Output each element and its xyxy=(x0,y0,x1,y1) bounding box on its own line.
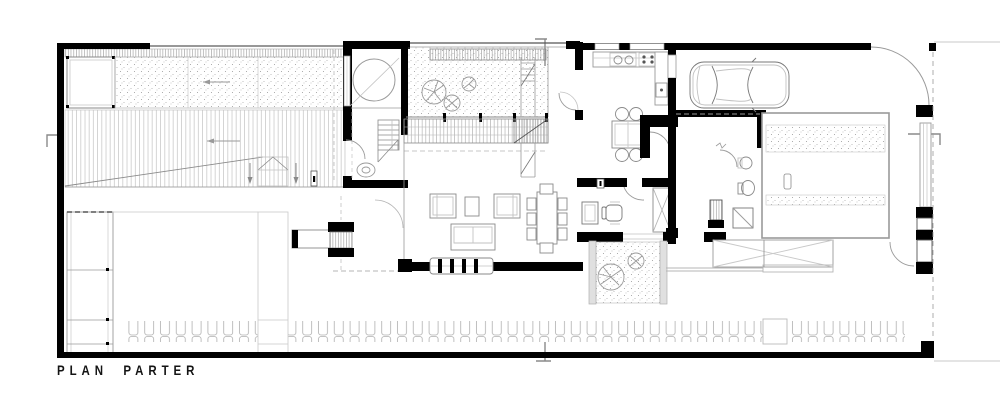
entry-door-arc xyxy=(559,93,576,110)
breakfast-table xyxy=(612,108,644,162)
terrace-door-arc xyxy=(375,200,403,228)
outdoor-grill xyxy=(292,196,354,272)
toilet xyxy=(738,181,755,196)
outdoor-left-zone xyxy=(65,46,345,355)
pavilion xyxy=(66,56,115,108)
planter-strip xyxy=(67,212,113,355)
bathroom xyxy=(666,143,755,242)
property-lines xyxy=(934,42,1000,361)
car-icon xyxy=(690,58,789,112)
bedroom-door-arc xyxy=(890,242,914,266)
south-wall-site xyxy=(57,352,934,358)
right-window-strip xyxy=(920,123,931,207)
office-terrace xyxy=(589,241,667,304)
garage-door-arc xyxy=(871,47,929,105)
bath-door-arc xyxy=(720,150,737,167)
armchair xyxy=(430,194,456,218)
driveway-ramp xyxy=(65,110,345,187)
entry-hall xyxy=(548,42,583,120)
paving-slabs xyxy=(123,318,933,345)
plan-title: PLAN PARTER xyxy=(57,362,199,378)
floor-plan-sheet: PLAN PARTER xyxy=(0,0,1000,400)
spa-room xyxy=(343,41,410,135)
office-chair xyxy=(602,202,622,224)
gate-post xyxy=(311,171,317,186)
wall-control xyxy=(597,179,604,188)
section-mark-bottom xyxy=(536,342,551,361)
south-window xyxy=(430,258,493,274)
shower xyxy=(733,208,753,228)
hall-door-arc xyxy=(650,132,670,152)
kitchen xyxy=(583,43,678,162)
sink xyxy=(738,157,752,169)
upper-deck xyxy=(115,57,345,108)
right-patio xyxy=(762,113,889,238)
built-in-cabinet xyxy=(666,240,833,272)
southeast-corner xyxy=(921,341,934,358)
armchair xyxy=(494,194,520,218)
patio-object xyxy=(784,174,791,189)
stair-hall xyxy=(343,112,408,188)
south-wall xyxy=(398,258,583,274)
spa-tub xyxy=(353,59,395,101)
sofa xyxy=(451,224,495,250)
hall-door-arc xyxy=(346,140,365,159)
fence-hatch-strip xyxy=(65,49,345,57)
boiler xyxy=(708,200,724,228)
right-wall xyxy=(916,52,933,340)
west-wall xyxy=(57,43,64,358)
courtyard xyxy=(408,41,580,117)
long-stair-band xyxy=(404,119,548,151)
stairs-up xyxy=(378,120,399,162)
north-wall-left xyxy=(57,43,150,49)
toilet xyxy=(357,163,375,177)
side-table xyxy=(465,197,479,216)
skylight-band xyxy=(430,49,546,60)
office-door-arc xyxy=(624,187,644,200)
path-landing xyxy=(763,319,787,344)
desk xyxy=(582,202,598,224)
dining-table xyxy=(527,184,567,253)
floor-plan-drawing xyxy=(0,0,1000,400)
